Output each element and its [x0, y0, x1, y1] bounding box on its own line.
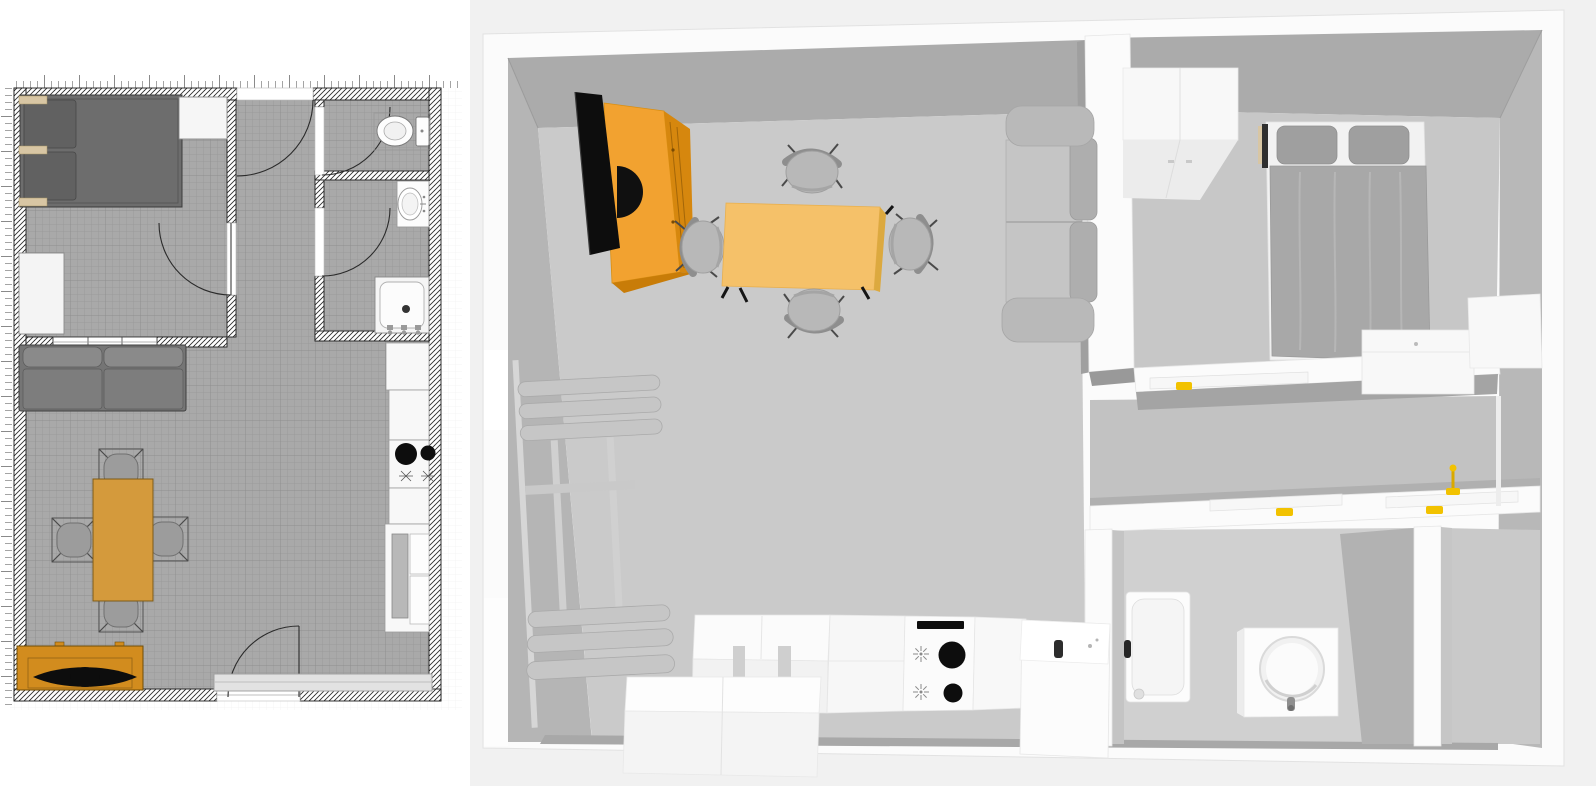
shower[interactable]	[375, 277, 429, 335]
wall-wc-bath[interactable]	[315, 171, 429, 180]
dining-chair-left[interactable]	[52, 518, 96, 562]
wall-bedroom-upper[interactable]	[227, 100, 236, 223]
cooktop-3d[interactable]	[903, 616, 975, 711]
kitchen-counter-end[interactable]	[973, 617, 1026, 710]
top-ruler	[10, 72, 462, 88]
west-wall-panel	[484, 598, 508, 746]
kitchen-unit-3[interactable]	[389, 488, 429, 524]
door-handle	[1276, 508, 1293, 516]
foot-chest-3d[interactable]	[1362, 330, 1474, 394]
kitchen-unit-2[interactable]	[389, 390, 429, 440]
bathroom-west-face	[1112, 530, 1124, 744]
wall-bedroom-lower[interactable]	[227, 295, 236, 337]
app-window	[0, 0, 1596, 786]
corner-cabinet-3d[interactable]	[1468, 294, 1542, 368]
storage-west-face	[1441, 527, 1452, 744]
wall-hall-a[interactable]	[315, 100, 324, 107]
washing-machine-3d[interactable]	[1020, 620, 1110, 758]
tv-cabinet[interactable]	[17, 642, 143, 690]
entrance-door-3d	[484, 350, 508, 430]
view-3d-canvas[interactable]	[470, 0, 1596, 786]
plan-2d-canvas[interactable]	[0, 0, 470, 786]
dining-table[interactable]	[93, 479, 153, 601]
storage-room-floor	[1441, 528, 1540, 744]
washbasin[interactable]	[397, 181, 429, 227]
corridor-corner-trim	[1496, 396, 1501, 506]
bathroom-mid-cap	[1414, 526, 1441, 746]
wall-bottom-left[interactable]	[14, 689, 217, 701]
wall-right[interactable]	[429, 88, 441, 701]
washbasin-3d[interactable]	[1237, 628, 1338, 717]
radiator-2d[interactable]	[214, 674, 432, 691]
sofa-3d[interactable]	[1002, 106, 1097, 342]
kitchen[interactable]	[385, 343, 436, 632]
kitchen-unit-1[interactable]	[386, 343, 429, 390]
sofa[interactable]	[19, 345, 186, 411]
shower-tray-3d[interactable]	[1124, 592, 1190, 702]
kitchen-sink-unit[interactable]	[385, 524, 429, 632]
plan-2d-panel[interactable]	[0, 0, 470, 786]
double-bed-3d[interactable]	[1258, 122, 1430, 360]
wardrobe[interactable]	[179, 97, 227, 139]
low-chest-3d[interactable]	[623, 677, 821, 777]
door-handle	[1426, 506, 1443, 514]
wall-top-right[interactable]	[313, 88, 441, 100]
view-3d-panel[interactable]	[470, 0, 1596, 786]
door-handle	[1176, 382, 1192, 390]
cooktop[interactable]	[389, 440, 436, 488]
closet[interactable]	[19, 253, 64, 334]
double-bed[interactable]	[19, 95, 182, 207]
